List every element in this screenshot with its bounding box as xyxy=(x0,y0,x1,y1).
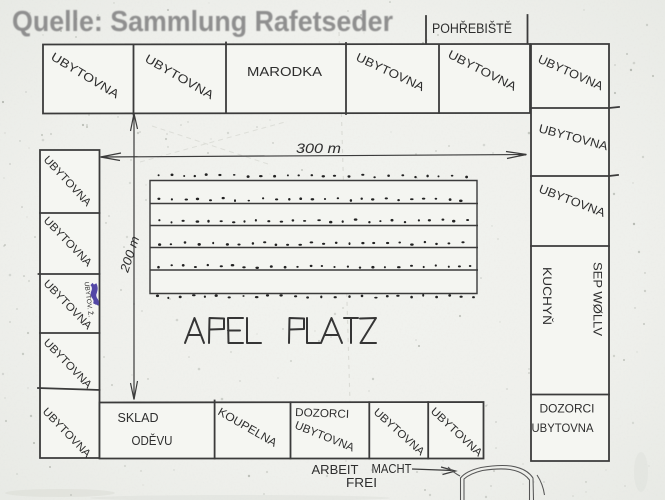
svg-text:300 m: 300 m xyxy=(296,140,341,156)
svg-text:MACHT: MACHT xyxy=(372,461,412,476)
svg-text:MARODKA: MARODKA xyxy=(247,65,323,79)
svg-text:UBYTOVNA: UBYTOVNA xyxy=(532,421,594,435)
svg-text:Quelle: Sammlung Rafetseder: Quelle: Sammlung Rafetseder xyxy=(12,6,393,38)
svg-text:DOZORCI: DOZORCI xyxy=(540,402,595,416)
svg-text:POHŘEBIŠTĚ: POHŘEBIŠTĚ xyxy=(432,21,512,36)
svg-text:KUCHYŇ: KUCHYŇ xyxy=(540,267,555,325)
svg-text:SKLAD: SKLAD xyxy=(118,410,159,425)
svg-text:FREI: FREI xyxy=(346,475,377,490)
svg-text:SEP WØLLV: SEP WØLLV xyxy=(591,262,603,336)
svg-text:DOZORCI: DOZORCI xyxy=(295,407,349,421)
svg-text:ODĚVU: ODĚVU xyxy=(132,433,173,448)
